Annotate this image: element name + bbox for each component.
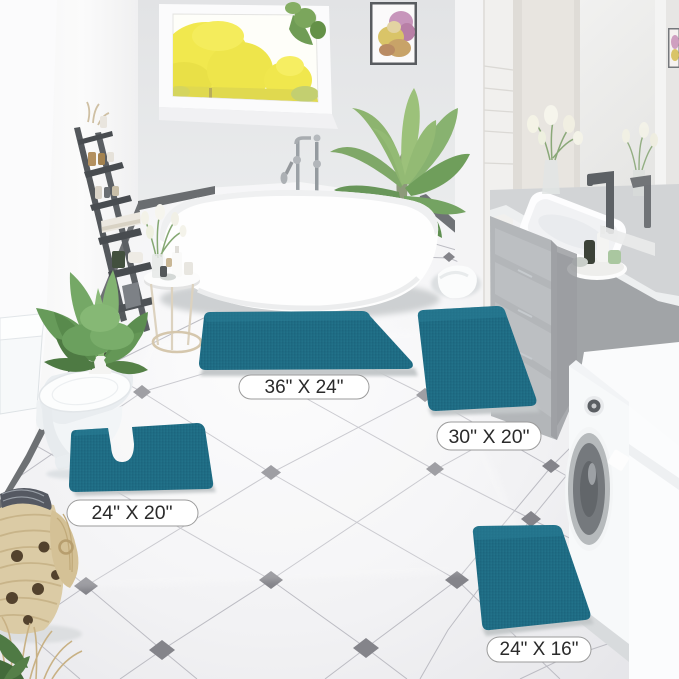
svg-text:36" X 24": 36" X 24" xyxy=(265,377,344,398)
svg-text:24" X 20": 24" X 20" xyxy=(91,502,172,524)
svg-text:24" X 16": 24" X 16" xyxy=(500,639,579,660)
svg-text:30" X 20": 30" X 20" xyxy=(448,426,529,448)
